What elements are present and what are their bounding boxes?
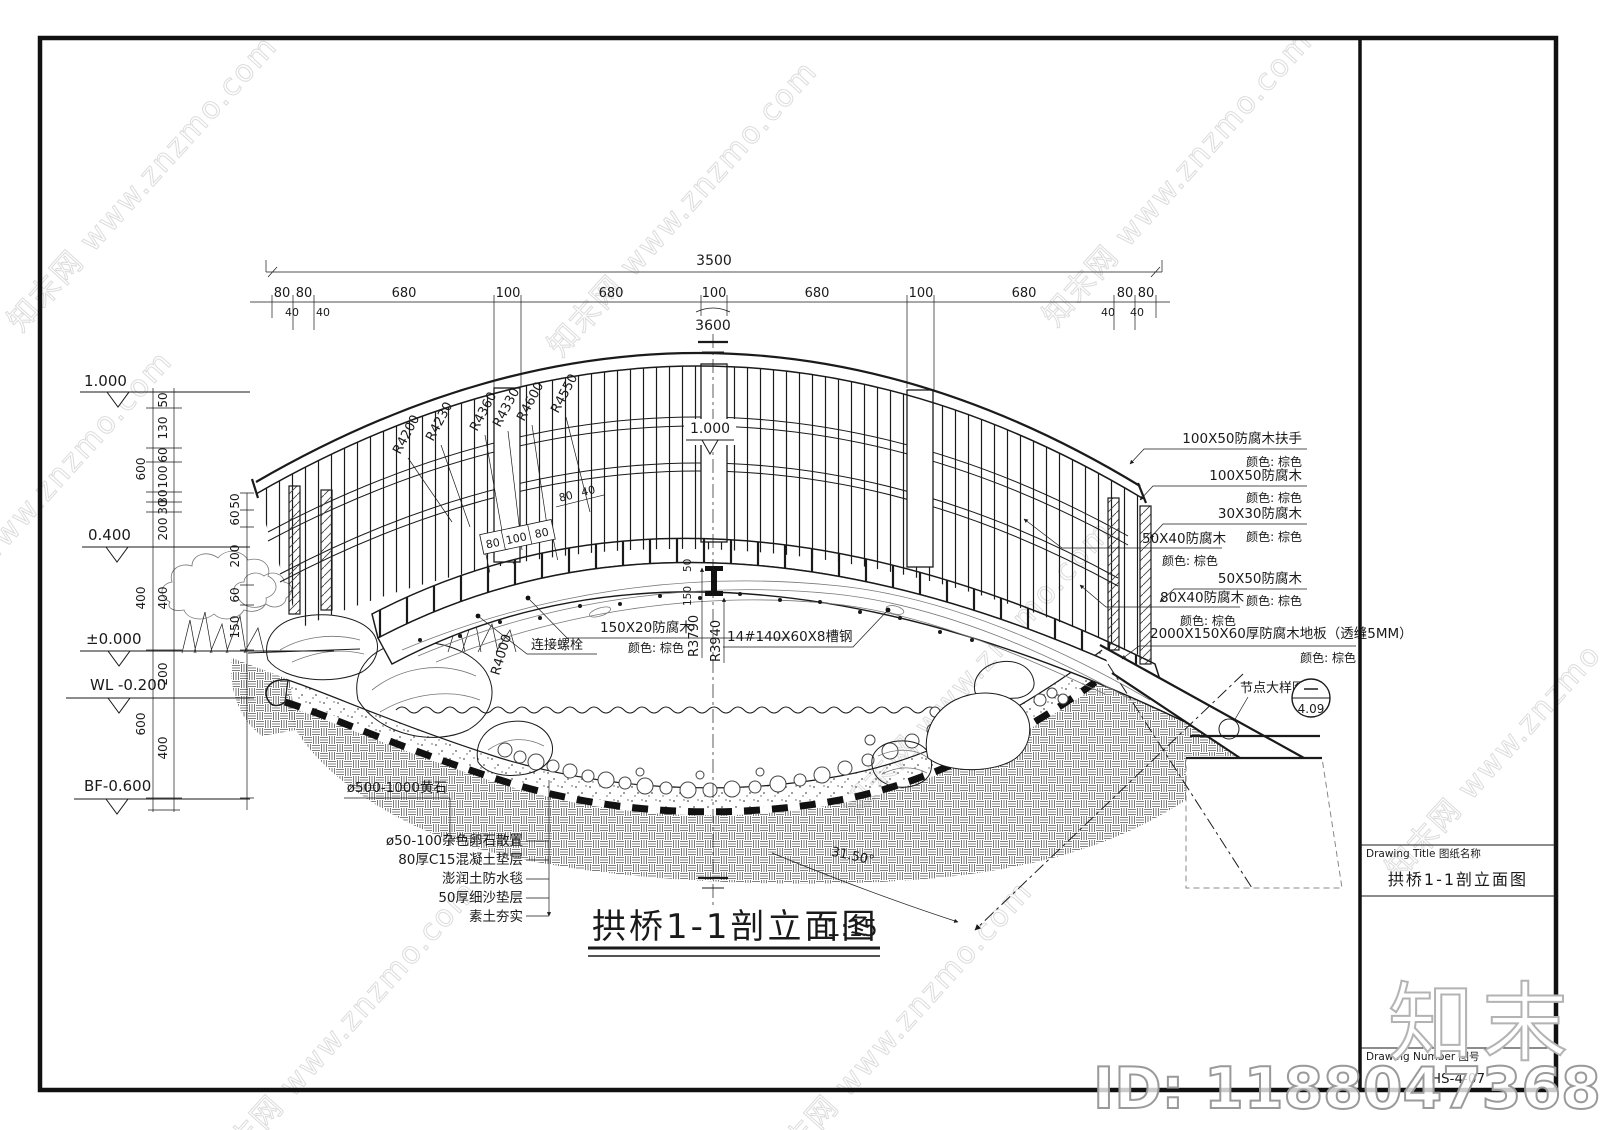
- callout: 50X50防腐木: [1218, 571, 1303, 587]
- dim-label: 200: [156, 663, 170, 686]
- view-scale: 1:15: [826, 916, 878, 942]
- elevation-marker: BF-0.600: [74, 777, 250, 814]
- callout-color: 颜色: 棕色: [1300, 650, 1356, 665]
- dim-label: 400: [156, 737, 170, 760]
- watermark-text: 知末网 www.znzmo.com: [1, 29, 285, 339]
- callout: ø50-100杂色卵石散置: [386, 832, 523, 849]
- callout-color: 颜色: 棕色: [1246, 593, 1302, 608]
- foundation: [1186, 758, 1342, 888]
- dim-label: 40: [1101, 306, 1115, 319]
- dim-label: 150: [228, 616, 242, 639]
- dim-label: 40: [316, 306, 330, 319]
- watermark-text: 知末网 www.znzmo.com: [1036, 24, 1320, 334]
- watermark-overlay: 知末 ID: 1188047368: [1093, 974, 1600, 1122]
- callout-plank: 150X20防腐木: [600, 620, 693, 636]
- callout: 50X40防腐木: [1142, 531, 1227, 547]
- callout: 80X40防腐木: [1160, 590, 1245, 606]
- callout-color: 颜色: 棕色: [1246, 454, 1302, 469]
- title-block-label: Drawing Title 图纸名称: [1366, 847, 1481, 860]
- dim-label: 680: [599, 286, 624, 301]
- radius-label: R3940: [709, 620, 724, 662]
- svg-text:1.000: 1.000: [84, 372, 127, 390]
- dim-label: 680: [1012, 286, 1037, 301]
- svg-text:WL -0.200: WL -0.200: [90, 676, 166, 694]
- radius-label: R4000: [488, 632, 515, 677]
- dim-label: 400: [156, 587, 170, 610]
- callout: 2000X150X60厚防腐木地板（透缝5MM）: [1150, 626, 1413, 642]
- dim-label: 60: [228, 587, 242, 602]
- dim-label: 80: [1138, 286, 1155, 301]
- dim-label: 150: [682, 586, 694, 606]
- svg-text:0.400: 0.400: [88, 526, 131, 544]
- view-title: 拱桥1-1剖立面图 1:15: [588, 907, 880, 956]
- dim-label: 60: [156, 447, 170, 462]
- dim-label: 50: [682, 559, 694, 572]
- dim-label: 60: [228, 510, 242, 525]
- callout-bolt: 连接螺栓: [531, 637, 583, 653]
- dim-label: 80: [274, 286, 291, 301]
- dim-label: 400: [134, 587, 148, 610]
- dim-label: 50: [228, 493, 242, 508]
- dim-overall: 3500: [696, 253, 732, 269]
- callout-color: 颜色: 棕色: [1162, 553, 1218, 568]
- callout: 100X50防腐木扶手: [1182, 431, 1302, 447]
- callout-channel: 14#140X60X8槽钢: [727, 629, 853, 645]
- callout: 素土夯实: [469, 909, 523, 925]
- dim-label: 40: [1130, 306, 1144, 319]
- dim-label: 130: [156, 417, 170, 440]
- dim-label: 100: [702, 286, 727, 301]
- dim-label: 30: [156, 499, 170, 514]
- dim-label: 40: [285, 306, 299, 319]
- dim-arc-length: 3600: [695, 318, 731, 334]
- callout: 50厚细沙垫层: [438, 890, 523, 906]
- callout-plank-color: 颜色: 棕色: [628, 640, 684, 655]
- dim-label: 600: [134, 713, 148, 736]
- watermark-text: 知末网 www.znzmo.com: [1379, 577, 1600, 887]
- dim-label: 680: [805, 286, 830, 301]
- cad-sheet: 知末网 www.znzmo.com 知末网 www.znzmo.com 知末网 …: [0, 0, 1600, 1130]
- callout: 澎润土防水毯: [442, 871, 523, 887]
- callout: 100X50防腐木: [1209, 468, 1302, 484]
- dim-label: 200: [156, 518, 170, 541]
- callout: 30X30防腐木: [1218, 506, 1303, 522]
- dim-label: 680: [392, 286, 417, 301]
- dim-label: 200: [228, 545, 242, 568]
- dim-label: 50: [156, 392, 170, 407]
- callout: 80厚C15混凝土垫层: [398, 852, 523, 868]
- svg-text:BF-0.600: BF-0.600: [84, 777, 151, 795]
- dim-label: 600: [134, 458, 148, 481]
- dim-label: 80: [296, 286, 313, 301]
- detail-number: 4.09: [1298, 702, 1325, 716]
- dim-label: 100: [496, 286, 521, 301]
- deck-elevation: 1.000: [690, 421, 730, 437]
- callout-color: 颜色: 棕色: [1246, 529, 1302, 544]
- callout: ø500-1000黄石: [347, 780, 447, 796]
- dim-label: 100: [909, 286, 934, 301]
- callout-color: 颜色: 棕色: [1246, 490, 1302, 505]
- dim-label: 80: [1117, 286, 1134, 301]
- watermark-text: 知末网 www.znzmo.com: [541, 54, 825, 364]
- watermark-id: ID: 1188047368: [1093, 1056, 1600, 1122]
- svg-text:±0.000: ±0.000: [86, 630, 142, 648]
- title-block-title: 拱桥1-1剖立面图: [1388, 870, 1528, 889]
- dim-label: 100: [156, 466, 170, 489]
